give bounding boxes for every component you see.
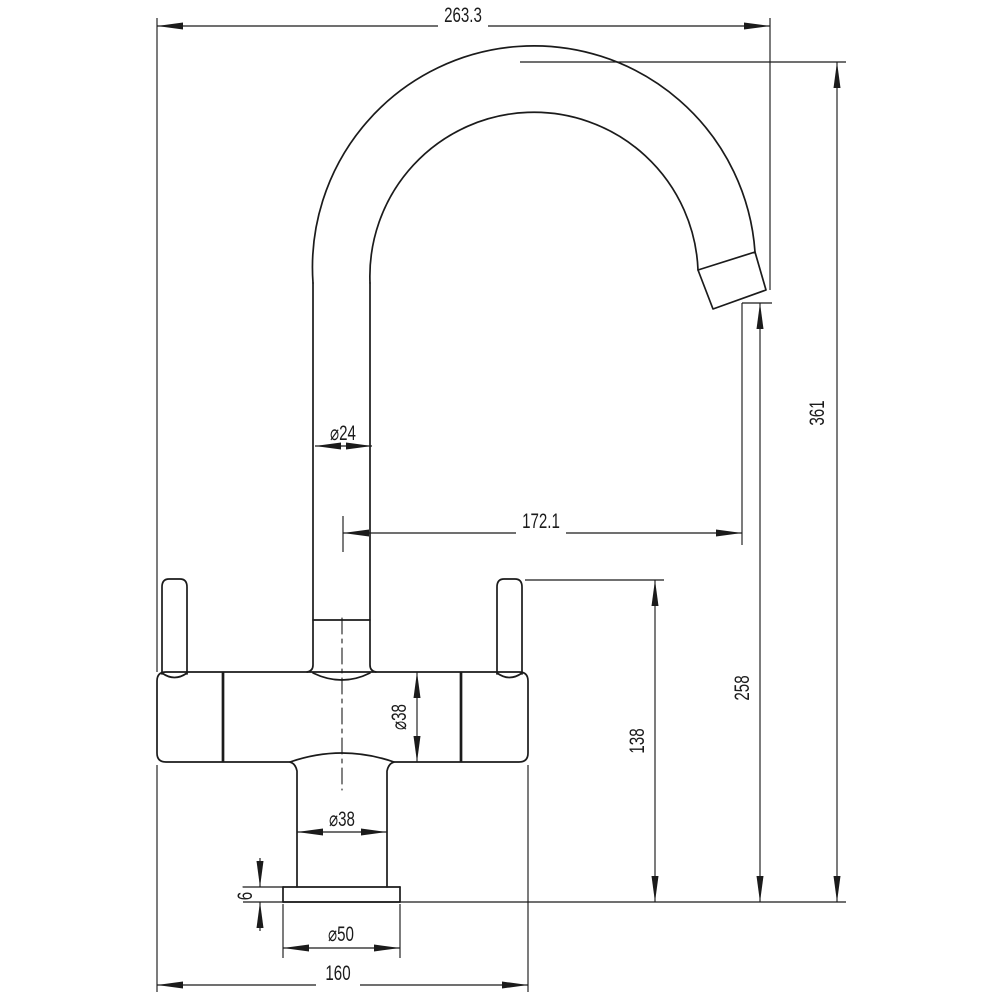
faucet-outline bbox=[157, 46, 766, 902]
dim-base-plate-thickness: 6 bbox=[232, 858, 263, 931]
dim-overall-base-width-label: 160 bbox=[325, 960, 350, 984]
dim-overall-height-label: 361 bbox=[804, 400, 828, 425]
dim-base-column-diameter-label: ⌀38 bbox=[329, 806, 355, 830]
dim-spout-tube-diameter: ⌀24 bbox=[315, 420, 372, 449]
dim-body-diameter: ⌀38 bbox=[386, 672, 420, 762]
aerator-nozzle bbox=[698, 252, 766, 309]
technical-drawing-canvas: 263.3 361 258 138 bbox=[0, 0, 1000, 1000]
spout-inner-curve bbox=[370, 112, 698, 283]
dim-spout-reach-label: 172.1 bbox=[522, 508, 560, 532]
handle-lever-right bbox=[497, 579, 522, 674]
dim-spout-tube-diameter-label: ⌀24 bbox=[330, 420, 356, 444]
dim-overall-height: 361 bbox=[520, 62, 846, 902]
dim-overall-width-label: 263.3 bbox=[444, 2, 482, 26]
drawing-sheet: 263.3 361 258 138 bbox=[0, 0, 1000, 1000]
dim-spout-outlet-height-label: 258 bbox=[729, 675, 753, 700]
dim-base-column-diameter: ⌀38 bbox=[297, 806, 387, 835]
dim-body-diameter-label: ⌀38 bbox=[386, 704, 410, 730]
handle-lever-left-base bbox=[162, 673, 187, 678]
dim-overall-width: 263.3 bbox=[157, 2, 770, 672]
dim-spout-outlet-height: 258 bbox=[729, 303, 772, 902]
handle-lever-right-base bbox=[497, 673, 522, 678]
dim-base-plate-diameter-label: ⌀50 bbox=[328, 921, 354, 945]
dim-spout-reach: 172.1 bbox=[343, 303, 742, 552]
dim-base-plate-thickness-label: 6 bbox=[232, 892, 256, 900]
dim-body-top-height-label: 138 bbox=[624, 728, 648, 753]
dimension-annotations: 263.3 361 258 138 bbox=[157, 2, 846, 992]
dim-base-plate-diameter: ⌀50 bbox=[283, 904, 400, 958]
dim-overall-base-width: 160 bbox=[157, 765, 528, 992]
riser-tube-left-edge bbox=[307, 283, 313, 672]
dim-body-top-height: 138 bbox=[525, 580, 664, 902]
riser-tube-right-edge bbox=[370, 283, 376, 672]
spout-outer-curve bbox=[312, 46, 755, 283]
handle-lever-left bbox=[162, 579, 187, 674]
